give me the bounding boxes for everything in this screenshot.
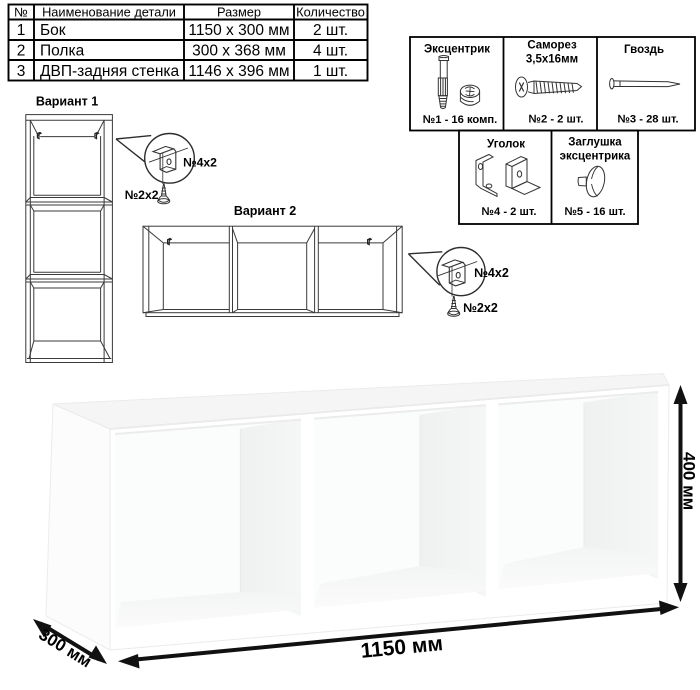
svg-text:№3 - 28 шт.: №3 - 28 шт. — [617, 114, 678, 126]
svg-text:Бок: Бок — [40, 22, 66, 39]
svg-text:3,5х16мм: 3,5х16мм — [526, 54, 578, 66]
svg-text:3: 3 — [17, 63, 26, 80]
svg-text:2 шт.: 2 шт. — [313, 22, 348, 39]
svg-text:300 x 368 мм: 300 x 368 мм — [192, 43, 286, 60]
svg-text:4 шт.: 4 шт. — [313, 43, 348, 60]
svg-text:№5 - 16 шт.: №5 - 16 шт. — [564, 206, 625, 218]
svg-text:Полка: Полка — [40, 43, 85, 60]
svg-text:400 мм: 400 мм — [680, 452, 699, 510]
svg-text:№4х2: №4х2 — [474, 266, 509, 280]
svg-text:Вариант 2: Вариант 2 — [234, 204, 296, 218]
svg-text:ДВП-задняя стенка: ДВП-задняя стенка — [40, 63, 180, 80]
svg-text:Заглушка: Заглушка — [568, 137, 622, 149]
svg-text:1 шт.: 1 шт. — [313, 63, 348, 80]
svg-text:Уголок: Уголок — [487, 139, 525, 151]
svg-text:Количество: Количество — [296, 5, 365, 20]
svg-text:№2х2: №2х2 — [125, 188, 159, 202]
svg-text:Гвоздь: Гвоздь — [624, 44, 664, 56]
svg-text:Вариант 1: Вариант 1 — [36, 95, 98, 109]
svg-text:№: № — [14, 5, 28, 20]
svg-text:№4 - 2 шт.: №4 - 2 шт. — [482, 206, 537, 218]
svg-text:Саморез: Саморез — [527, 40, 577, 52]
svg-text:Эксцентрик: Эксцентрик — [424, 44, 490, 56]
svg-text:№2 - 2 шт.: №2 - 2 шт. — [529, 114, 584, 126]
svg-text:№1 - 16 комп.: №1 - 16 комп. — [423, 114, 497, 126]
svg-text:1150 x 300 мм: 1150 x 300 мм — [188, 22, 289, 39]
svg-text:№4х2: №4х2 — [183, 156, 217, 170]
svg-text:эксцентрика: эксцентрика — [560, 151, 631, 163]
svg-text:1146 x 396 мм: 1146 x 396 мм — [188, 63, 289, 80]
svg-text:№2х2: №2х2 — [463, 301, 498, 315]
svg-text:Размер: Размер — [217, 5, 261, 20]
svg-text:2: 2 — [17, 43, 26, 60]
svg-text:Наименование детали: Наименование детали — [42, 5, 176, 20]
svg-text:1: 1 — [17, 22, 26, 39]
